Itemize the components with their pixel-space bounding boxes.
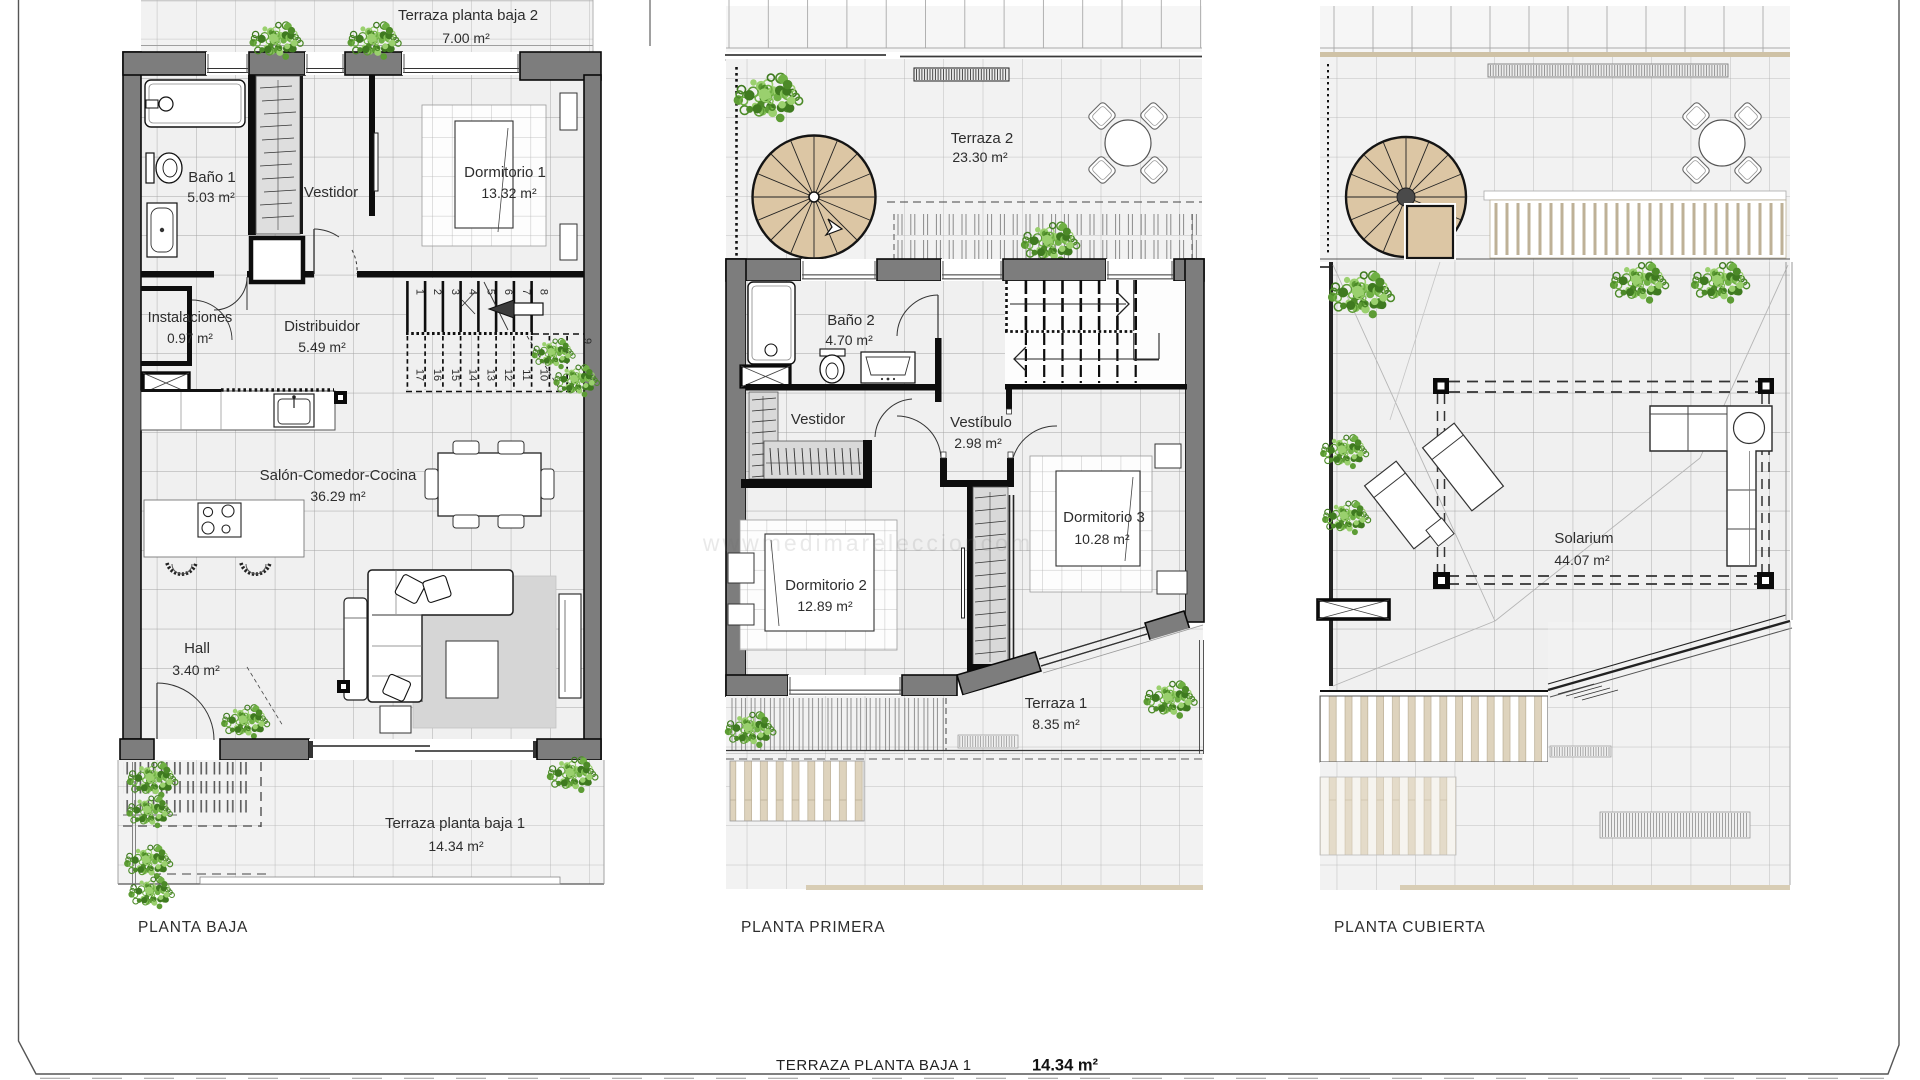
svg-text:Hall: Hall bbox=[184, 640, 210, 657]
svg-text:Dormitorio 2: Dormitorio 2 bbox=[785, 577, 867, 594]
svg-text:5.03 m²: 5.03 m² bbox=[187, 189, 235, 205]
svg-text:4.70 m²: 4.70 m² bbox=[825, 332, 873, 348]
svg-text:44.07 m²: 44.07 m² bbox=[1554, 552, 1610, 568]
svg-text:Terraza 1: Terraza 1 bbox=[1025, 695, 1088, 712]
svg-text:5.49 m²: 5.49 m² bbox=[298, 339, 346, 355]
svg-text:7.00 m²: 7.00 m² bbox=[442, 30, 490, 46]
svg-text:14.34 m²: 14.34 m² bbox=[1032, 1057, 1099, 1075]
svg-text:13: 13 bbox=[484, 369, 496, 381]
svg-text:8.35 m²: 8.35 m² bbox=[1032, 716, 1080, 732]
svg-text:Vestidor: Vestidor bbox=[791, 411, 845, 428]
svg-text:3.40 m²: 3.40 m² bbox=[172, 662, 220, 678]
svg-text:10: 10 bbox=[538, 369, 550, 381]
svg-text:PLANTA PRIMERA: PLANTA PRIMERA bbox=[741, 919, 885, 936]
svg-text:23.30 m²: 23.30 m² bbox=[952, 149, 1008, 165]
svg-text:0.97 m²: 0.97 m² bbox=[167, 331, 213, 346]
svg-text:11: 11 bbox=[520, 369, 532, 380]
svg-text:Distribuidor: Distribuidor bbox=[284, 318, 360, 335]
svg-text:36.29 m²: 36.29 m² bbox=[310, 488, 366, 504]
svg-text:Terraza planta baja 2: Terraza planta baja 2 bbox=[398, 7, 538, 24]
svg-text:Baño 1: Baño 1 bbox=[188, 169, 236, 186]
svg-text:2: 2 bbox=[431, 289, 443, 295]
svg-text:PLANTA BAJA: PLANTA BAJA bbox=[138, 919, 248, 936]
svg-text:12: 12 bbox=[502, 369, 514, 381]
svg-text:14: 14 bbox=[467, 369, 479, 381]
svg-text:Vestidor: Vestidor bbox=[304, 184, 358, 201]
svg-text:9: 9 bbox=[581, 338, 593, 344]
svg-text:Dormitorio 1: Dormitorio 1 bbox=[464, 164, 546, 181]
svg-text:13.32 m²: 13.32 m² bbox=[481, 185, 537, 201]
svg-text:2.98 m²: 2.98 m² bbox=[954, 435, 1002, 451]
svg-text:Baño 2: Baño 2 bbox=[827, 312, 875, 329]
svg-text:6: 6 bbox=[502, 289, 514, 295]
svg-text:TERRAZA PLANTA BAJA 1: TERRAZA PLANTA BAJA 1 bbox=[776, 1057, 972, 1074]
svg-text:12.89 m²: 12.89 m² bbox=[797, 598, 853, 614]
svg-text:14.34 m²: 14.34 m² bbox=[428, 838, 484, 854]
svg-text:Salón-Comedor-Cocina: Salón-Comedor-Cocina bbox=[260, 467, 417, 484]
svg-text:Instalaciones: Instalaciones bbox=[148, 310, 233, 326]
svg-text:10.28 m²: 10.28 m² bbox=[1074, 531, 1130, 547]
svg-text:8: 8 bbox=[538, 289, 550, 295]
svg-text:Terraza planta baja 1: Terraza planta baja 1 bbox=[385, 815, 525, 832]
svg-text:15: 15 bbox=[449, 369, 461, 381]
svg-text:7: 7 bbox=[520, 289, 532, 295]
svg-text:Solarium: Solarium bbox=[1554, 530, 1613, 547]
svg-text:wwwmedimareleccioncom: wwwmedimareleccioncom bbox=[702, 530, 1033, 556]
svg-text:17: 17 bbox=[413, 369, 425, 381]
svg-text:Terraza 2: Terraza 2 bbox=[951, 130, 1014, 147]
svg-text:Dormitorio 3: Dormitorio 3 bbox=[1063, 509, 1145, 526]
svg-text:PLANTA CUBIERTA: PLANTA CUBIERTA bbox=[1334, 919, 1486, 936]
svg-text:1: 1 bbox=[413, 289, 425, 295]
svg-text:16: 16 bbox=[431, 369, 443, 381]
svg-text:Vestíbulo: Vestíbulo bbox=[950, 414, 1012, 431]
svg-text:3: 3 bbox=[449, 289, 461, 295]
